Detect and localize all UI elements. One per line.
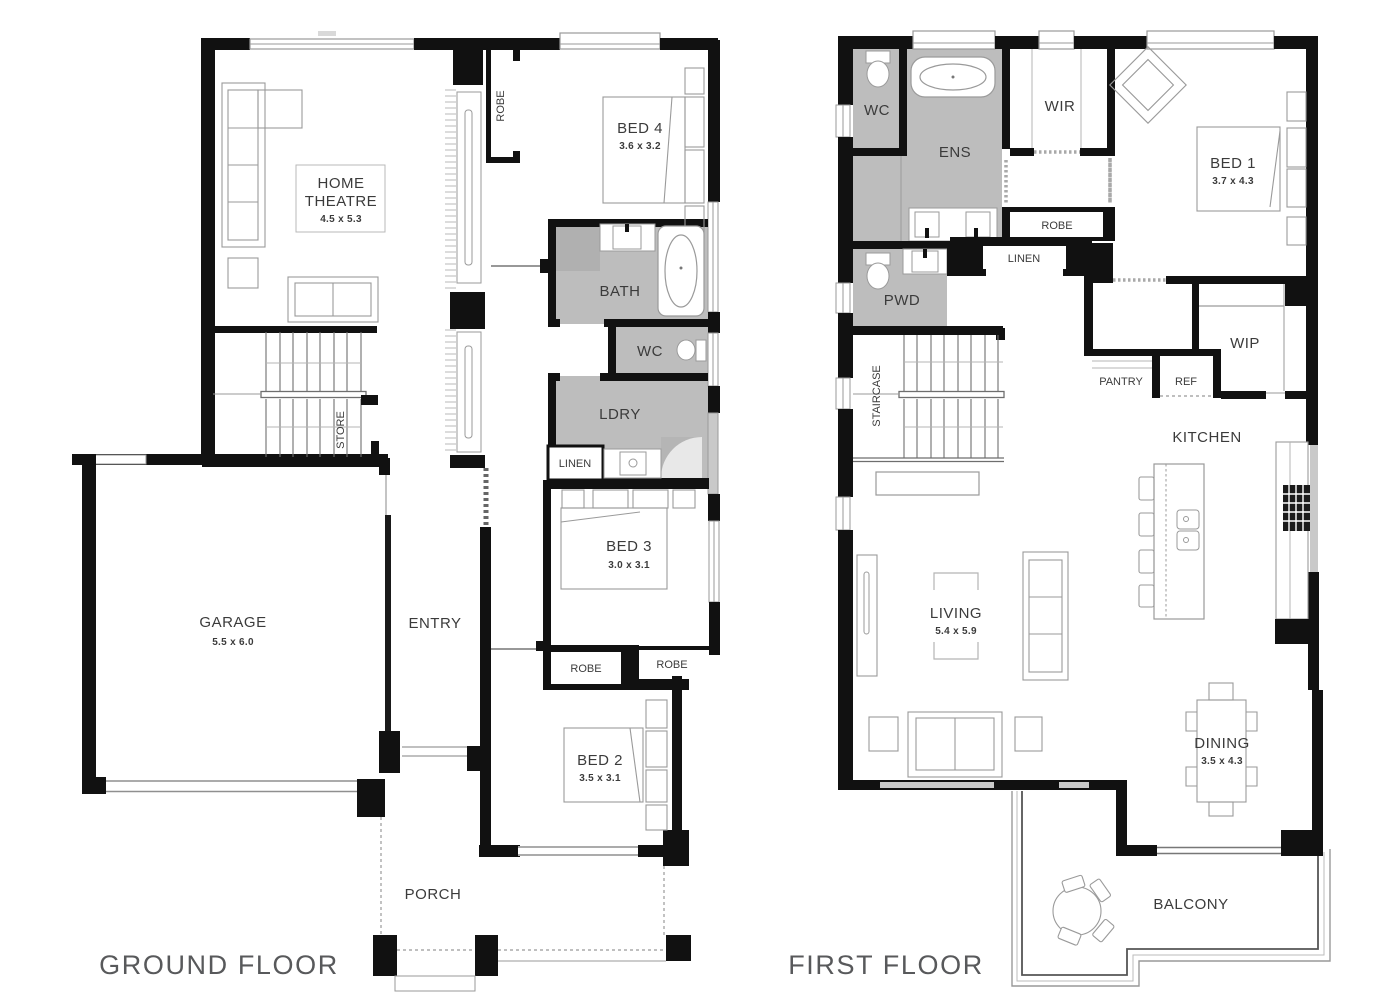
svg-text:ROBE: ROBE xyxy=(495,90,507,121)
svg-text:LDRY: LDRY xyxy=(599,406,641,423)
svg-text:WIP: WIP xyxy=(1230,335,1260,352)
svg-text:REF: REF xyxy=(1175,376,1197,388)
svg-text:WC: WC xyxy=(864,102,890,119)
svg-text:3.7 x 4.3: 3.7 x 4.3 xyxy=(1212,176,1254,187)
svg-text:PWD: PWD xyxy=(884,292,921,309)
svg-text:BATH: BATH xyxy=(600,283,641,300)
svg-text:ENS: ENS xyxy=(939,144,971,161)
svg-text:ROBE: ROBE xyxy=(1041,220,1072,232)
svg-text:5.4 x 5.9: 5.4 x 5.9 xyxy=(935,626,977,637)
svg-text:BALCONY: BALCONY xyxy=(1153,896,1228,913)
svg-text:KITCHEN: KITCHEN xyxy=(1172,429,1241,446)
svg-text:PANTRY: PANTRY xyxy=(1099,376,1143,388)
svg-text:STORE: STORE xyxy=(335,411,347,449)
svg-text:GROUND FLOOR: GROUND FLOOR xyxy=(99,950,339,980)
svg-text:ROBE: ROBE xyxy=(570,663,601,675)
svg-text:LINEN: LINEN xyxy=(1008,253,1040,265)
svg-text:FIRST FLOOR: FIRST FLOOR xyxy=(788,950,984,980)
svg-text:3.0 x 3.1: 3.0 x 3.1 xyxy=(608,560,650,571)
svg-text:GARAGE: GARAGE xyxy=(199,614,266,631)
svg-text:4.5 x 5.3: 4.5 x 5.3 xyxy=(320,214,362,225)
svg-text:WIR: WIR xyxy=(1045,98,1076,115)
svg-text:HOME: HOME xyxy=(318,175,365,192)
svg-text:5.5 x 6.0: 5.5 x 6.0 xyxy=(212,637,254,648)
svg-text:STAIRCASE: STAIRCASE xyxy=(871,365,883,427)
svg-text:ROBE: ROBE xyxy=(656,659,687,671)
svg-text:WC: WC xyxy=(637,343,663,360)
svg-text:BED 3: BED 3 xyxy=(606,538,652,555)
svg-text:ENTRY: ENTRY xyxy=(408,615,461,632)
svg-text:LIVING: LIVING xyxy=(930,605,982,622)
svg-text:3.6 x 3.2: 3.6 x 3.2 xyxy=(619,141,661,152)
svg-text:DINING: DINING xyxy=(1194,735,1250,752)
svg-text:PORCH: PORCH xyxy=(405,886,462,903)
svg-text:BED 4: BED 4 xyxy=(617,120,663,137)
svg-text:BED 1: BED 1 xyxy=(1210,155,1256,172)
svg-text:BED 2: BED 2 xyxy=(577,752,623,769)
svg-text:THEATRE: THEATRE xyxy=(305,193,377,210)
svg-text:3.5 x 4.3: 3.5 x 4.3 xyxy=(1201,756,1243,767)
svg-text:3.5 x 3.1: 3.5 x 3.1 xyxy=(579,773,621,784)
svg-text:LINEN: LINEN xyxy=(559,458,591,470)
